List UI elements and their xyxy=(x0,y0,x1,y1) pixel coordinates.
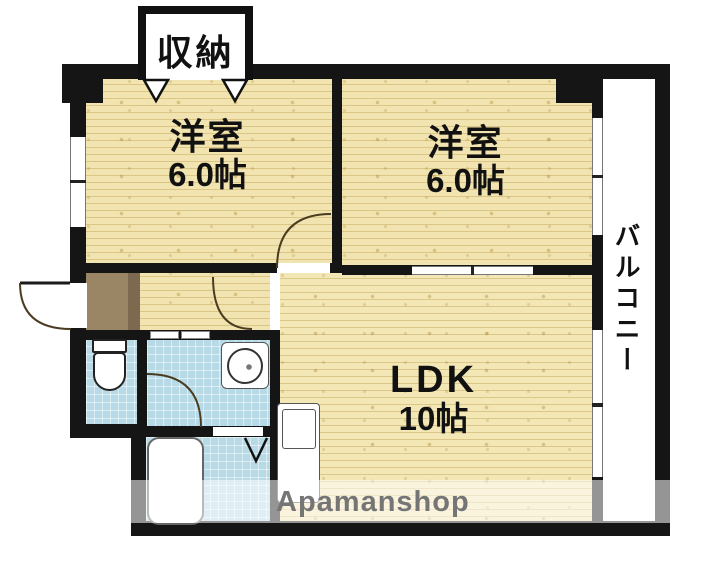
wall-balcony-s2 xyxy=(592,235,603,330)
balcony-label: バルコニー xyxy=(608,222,645,407)
room1-label: 洋室 6.0帖 xyxy=(120,118,295,193)
wall-balcony-s1 xyxy=(592,79,603,118)
room1-size: 6.0帖 xyxy=(120,157,295,193)
column-top-left xyxy=(62,64,103,103)
doorway-washroom-b xyxy=(181,331,210,339)
doorway-room1 xyxy=(277,263,330,273)
window-ldk-tick xyxy=(592,403,603,407)
closet-box: 収納 xyxy=(138,6,253,80)
sliding-door-tick xyxy=(471,266,474,275)
doorway-hall-ldk xyxy=(270,273,280,330)
kitchen-sink-icon xyxy=(282,409,316,449)
doorway-washroom-a xyxy=(150,331,179,339)
room2-label: 洋室 6.0帖 xyxy=(378,124,553,199)
wall-bottom xyxy=(131,521,670,536)
doorway-entrance xyxy=(68,283,87,328)
window-room1-left-tick xyxy=(70,180,86,183)
washbasin-icon xyxy=(221,342,269,389)
wall-toilet-wash xyxy=(137,338,147,428)
entrance-door-arc xyxy=(20,283,71,329)
ldk-size: 10帖 xyxy=(346,401,521,437)
doorway-bathroom xyxy=(213,427,263,436)
entrance-step xyxy=(128,271,140,332)
ldk-label: LDK 10帖 xyxy=(346,360,521,437)
room2-name: 洋室 xyxy=(378,124,553,163)
watermark-band: Apamanshop xyxy=(0,480,720,523)
toilet-icon xyxy=(92,339,127,353)
wall-right xyxy=(655,64,670,536)
room1-name: 洋室 xyxy=(120,118,295,157)
floor-plan: 収納 洋室 6.0帖 洋室 6.0帖 LDK 10帖 バルコニー Apamans… xyxy=(0,0,720,576)
watermark-text: Apamanshop xyxy=(276,486,470,519)
window-room2-tick xyxy=(592,175,603,178)
room2-size: 6.0帖 xyxy=(378,163,553,199)
wall-rooms-divider xyxy=(332,79,342,273)
wall-left xyxy=(70,64,86,438)
closet-label: 収納 xyxy=(146,24,245,76)
toilet-bowl-icon xyxy=(93,352,126,391)
ldk-name: LDK xyxy=(346,360,521,401)
